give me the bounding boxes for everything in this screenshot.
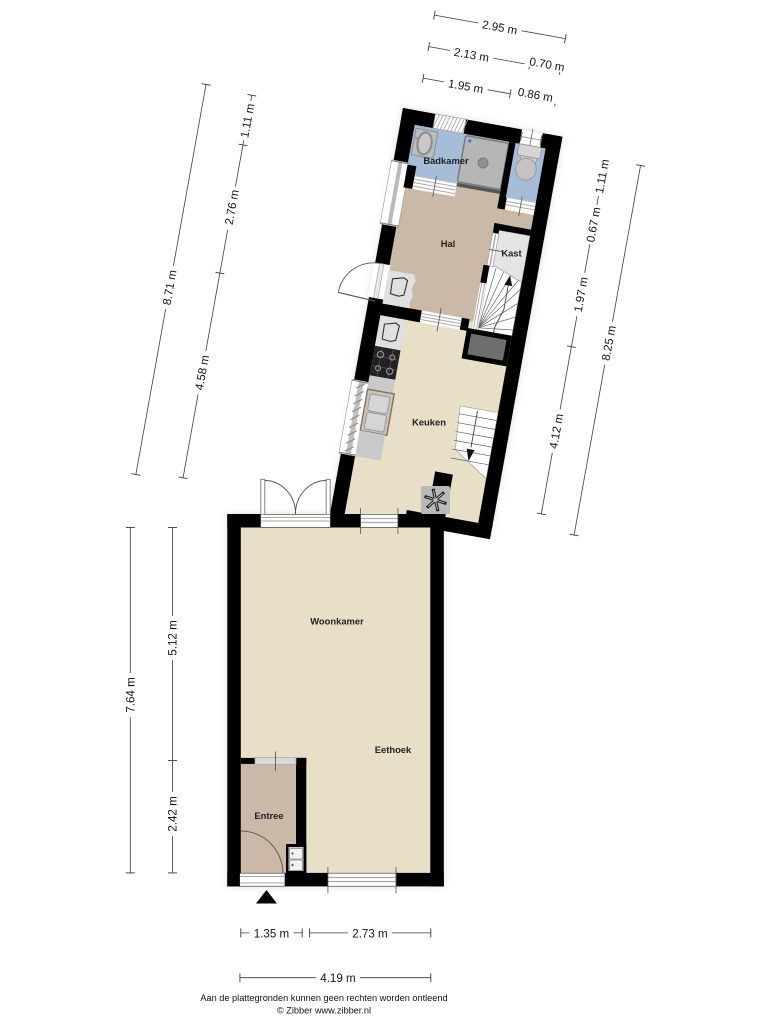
svg-text:2.73 m: 2.73 m <box>352 927 387 940</box>
svg-text:Hal: Hal <box>441 238 456 249</box>
svg-text:7.64 m: 7.64 m <box>125 677 138 712</box>
svg-text:Aan de plattegronden kunnen ge: Aan de plattegronden kunnen geen rechten… <box>200 993 447 1003</box>
svg-text:Eethoek: Eethoek <box>375 744 412 755</box>
svg-text:Entree: Entree <box>254 810 283 821</box>
svg-text:© Zibber www.zibber.nl: © Zibber www.zibber.nl <box>277 1006 371 1016</box>
svg-text:1.35 m: 1.35 m <box>254 927 289 940</box>
svg-text:4.19 m: 4.19 m <box>320 972 355 985</box>
svg-text:Woonkamer: Woonkamer <box>310 616 364 627</box>
svg-text:Keuken: Keuken <box>412 417 446 428</box>
svg-text:2.42 m: 2.42 m <box>167 796 180 831</box>
svg-text:Kast: Kast <box>501 248 521 259</box>
svg-text:5.12 m: 5.12 m <box>167 620 180 655</box>
svg-text:Badkamer: Badkamer <box>423 155 469 166</box>
